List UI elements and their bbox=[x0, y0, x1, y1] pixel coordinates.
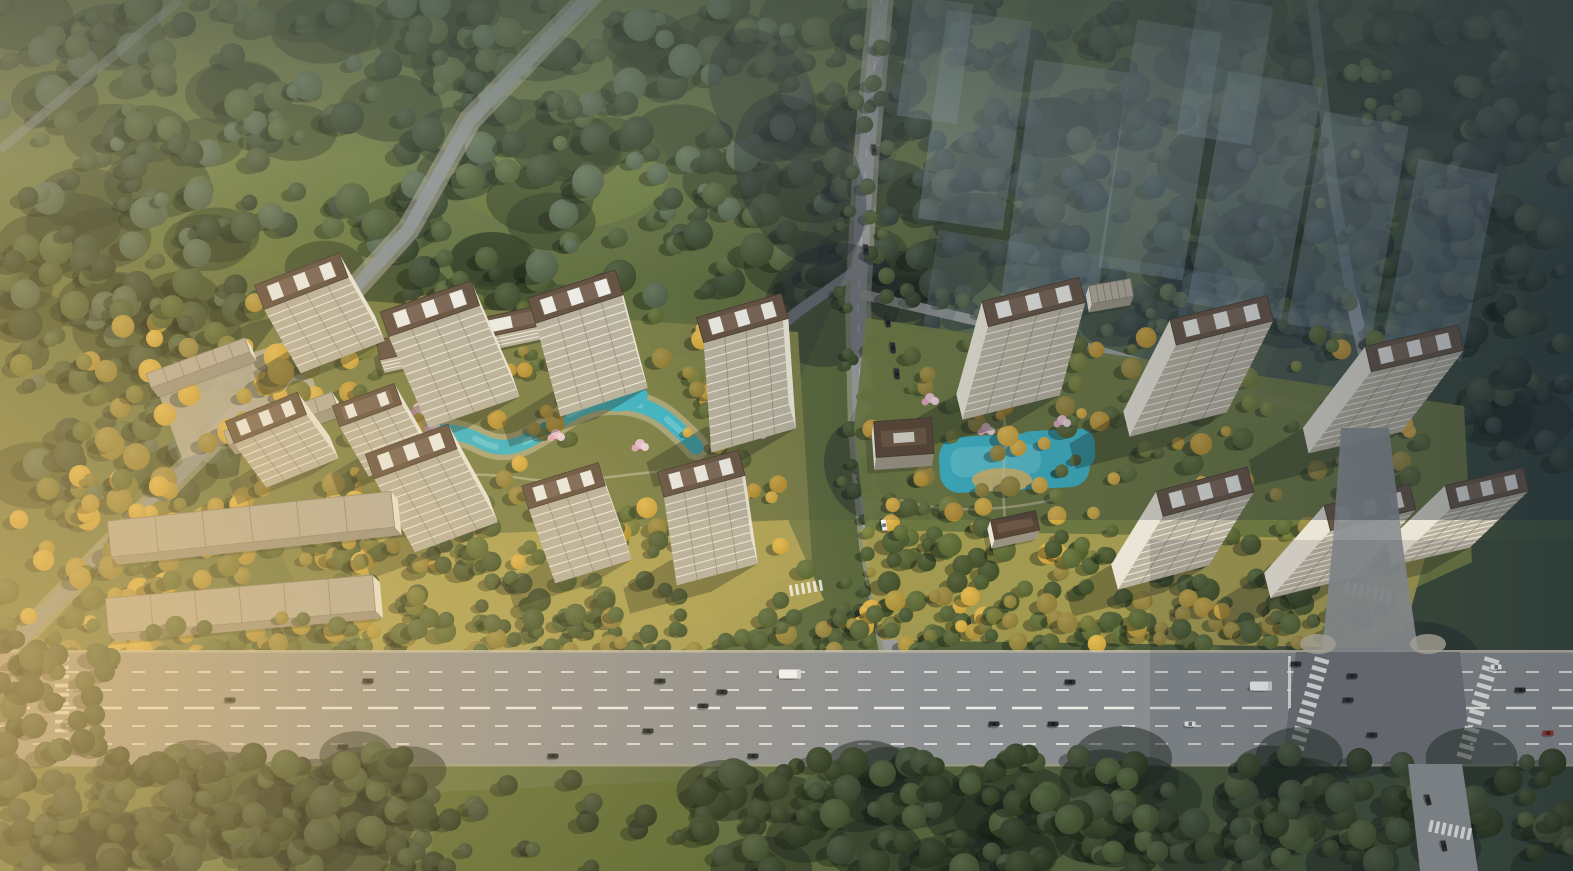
atmosphere-overlays bbox=[0, 0, 1573, 871]
aerial-site-rendering bbox=[0, 0, 1573, 871]
rendering-canvas bbox=[0, 0, 1573, 871]
rendered-scene bbox=[0, 0, 1573, 871]
